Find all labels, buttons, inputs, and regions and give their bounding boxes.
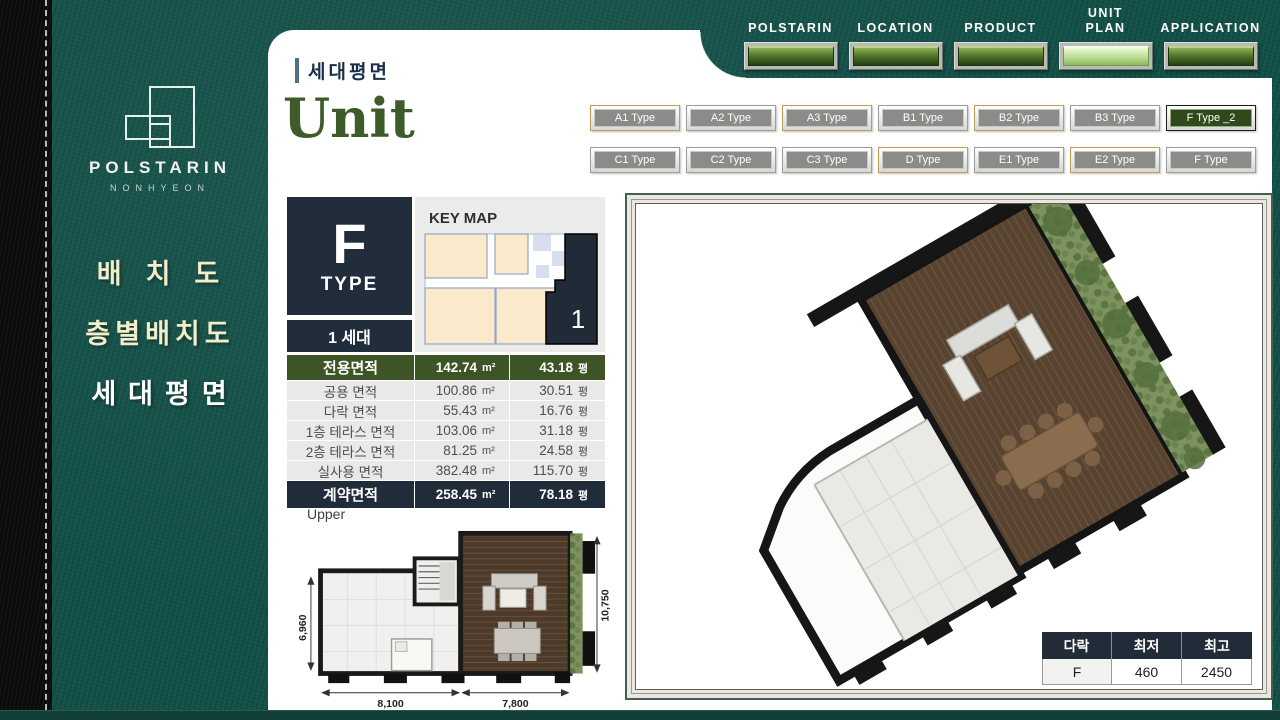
polstarin-logo-icon (124, 86, 196, 148)
key-map-title: KEY MAP (415, 197, 605, 227)
nav-item-product[interactable]: PRODUCT (950, 6, 1051, 70)
area-table: 전용면적 142.74m² 43.18평 공용 면적 100.86m² 30.5… (287, 355, 605, 509)
sidebar-item-site-plan[interactable]: 배치도 (52, 252, 268, 291)
render-panel (635, 203, 1263, 690)
attic-height-table: 다락 최저 최고 F 460 2450 (1042, 632, 1252, 685)
type-button-a3[interactable]: A3 Type (782, 105, 872, 131)
nav-button-frame (1164, 42, 1258, 70)
nav-item-unit-plan[interactable]: UNIT PLAN (1055, 6, 1156, 70)
attic-data-row: F 460 2450 (1042, 659, 1252, 685)
type-button-c3[interactable]: C3 Type (782, 147, 872, 173)
dim-bottom-left: 8,100 (377, 698, 404, 710)
nav-item-application[interactable]: APPLICATION (1160, 6, 1261, 70)
hedge (570, 533, 582, 673)
sofa-set (483, 574, 546, 610)
nav-button-active[interactable] (1063, 46, 1149, 66)
slide-page: POLSTARIN NONHYEON 배치도 층별배치도 세대평면 POLSTA… (0, 0, 1280, 720)
nav-label: UNIT PLAN (1075, 6, 1137, 36)
breadcrumb-text: 세대평면 (308, 57, 390, 84)
type-button-f2-active[interactable]: F Type _2 (1166, 105, 1256, 131)
nav-button[interactable] (958, 46, 1044, 66)
dim-bottom-right: 7,800 (502, 698, 529, 710)
type-button-a1[interactable]: A1 Type (590, 105, 680, 131)
bottom-bar (0, 710, 1280, 720)
type-button-row-2: C1 Type C2 Type C3 Type D Type E1 Type E… (590, 147, 1256, 173)
brand-logo: POLSTARIN NONHYEON (52, 86, 268, 193)
type-button-b1[interactable]: B1 Type (878, 105, 968, 131)
dim-left: 6,960 (297, 614, 309, 641)
unit-type-letter: F (332, 216, 366, 272)
unit-type-box: F TYPE (287, 197, 412, 315)
nav-button-frame (744, 42, 838, 70)
type-button-b2[interactable]: B2 Type (974, 105, 1064, 131)
unit-type-word: TYPE (321, 274, 379, 296)
table-row: 실사용 면적 382.48m² 115.70평 (287, 461, 605, 480)
top-nav: POLSTARIN LOCATION PRODUCT UNIT PLAN APP… (740, 6, 1261, 70)
breadcrumb-bar (295, 58, 299, 83)
nav-button-frame (1059, 42, 1153, 70)
nav-label: LOCATION (857, 21, 933, 36)
sidebar-item-floor-plan[interactable]: 층별배치도 (52, 312, 268, 351)
type-button-f[interactable]: F Type (1166, 147, 1256, 173)
sidebar-item-unit-plan[interactable]: 세대평면 (52, 372, 268, 411)
brand-subname: NONHYEON (52, 183, 268, 193)
nav-label: POLSTARIN (748, 21, 833, 36)
dining-set (494, 622, 540, 661)
type-button-b3[interactable]: B3 Type (1070, 105, 1160, 131)
page-title: Unit (283, 86, 415, 150)
type-button-c1[interactable]: C1 Type (590, 147, 680, 173)
nav-button[interactable] (853, 46, 939, 66)
key-map-diagram: 1 (415, 230, 605, 348)
type-button-c2[interactable]: C2 Type (686, 147, 776, 173)
table-row: 다락 면적 55.43m² 16.76평 (287, 401, 605, 420)
type-button-e2[interactable]: E2 Type (1070, 147, 1160, 173)
breadcrumb: 세대평면 (295, 57, 390, 84)
nav-item-location[interactable]: LOCATION (845, 6, 946, 70)
nav-label: PRODUCT (964, 21, 1036, 36)
attic-header-row: 다락 최저 최고 (1042, 632, 1252, 659)
table-row: 2층 테라스 면적 81.25m² 24.58평 (287, 441, 605, 460)
table-row: 전용면적 142.74m² 43.18평 (287, 355, 605, 380)
unit-3d-render (636, 204, 1263, 690)
type-button-e1[interactable]: E1 Type (974, 147, 1064, 173)
type-button-a2[interactable]: A2 Type (686, 105, 776, 131)
render-panel-frame-inner (631, 199, 1267, 694)
type-button-row-1: A1 Type A2 Type A3 Type B1 Type B2 Type … (590, 105, 1256, 131)
key-map-unit-number: 1 (571, 304, 585, 334)
nav-button-frame (954, 42, 1048, 70)
nav-button-frame (849, 42, 943, 70)
table-row: 1층 테라스 면적 103.06m² 31.18평 (287, 421, 605, 440)
stitch-line (45, 0, 47, 720)
household-count-box: 1 세대 (287, 320, 412, 352)
nav-button[interactable] (1168, 46, 1254, 66)
nav-item-polstarin[interactable]: POLSTARIN (740, 6, 841, 70)
table-row: 공용 면적 100.86m² 30.51평 (287, 381, 605, 400)
dim-right: 10,750 (600, 589, 612, 621)
table-row: 계약면적 258.45m² 78.18평 (287, 481, 605, 508)
render-panel-frame (625, 193, 1273, 700)
type-button-d[interactable]: D Type (878, 147, 968, 173)
brand-name: POLSTARIN (52, 158, 268, 178)
upper-floor-plan: 6,960 10,750 8,100 7,800 (293, 518, 613, 710)
nav-label: APPLICATION (1160, 21, 1260, 36)
nav-button[interactable] (748, 46, 834, 66)
key-map-panel: KEY MAP 1 (415, 197, 605, 352)
